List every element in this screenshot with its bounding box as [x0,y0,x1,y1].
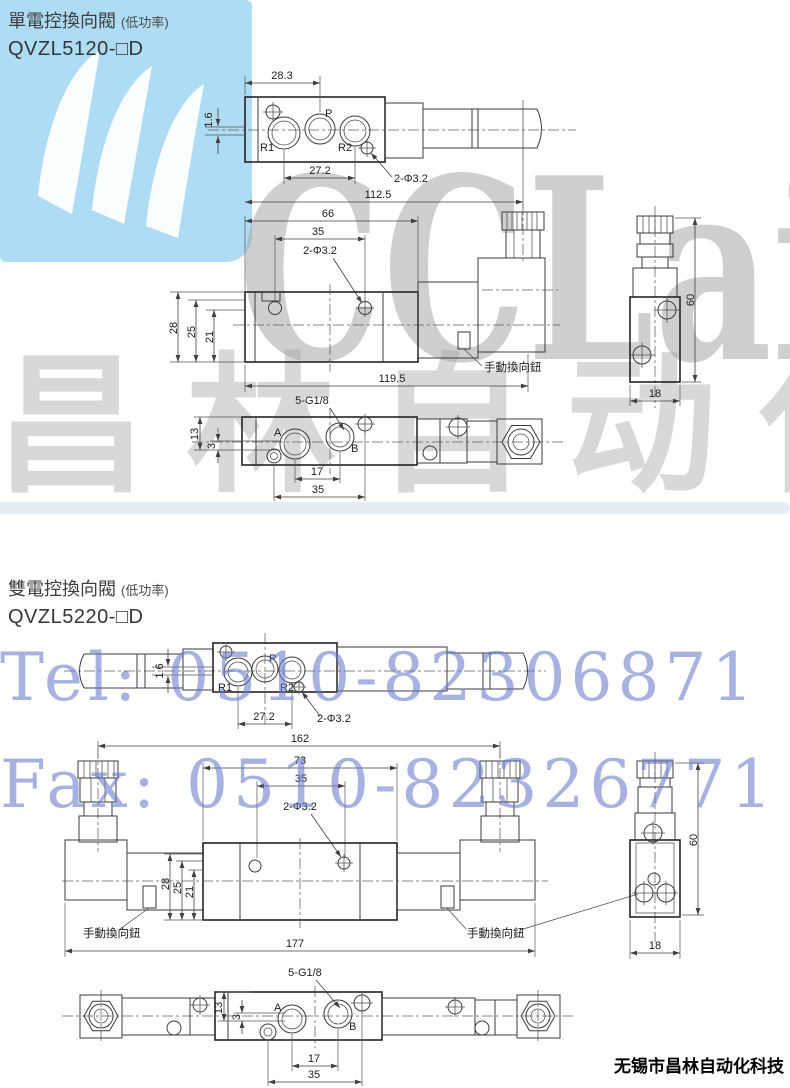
qvzl5120-drawing: R1 P R2 28.3 1.6 27.2 2-Φ3.2 112.5 66 35… [0,60,790,560]
dim-label: 1.6 [203,112,215,127]
section1-title-note: (低功率) [121,15,169,30]
section2-title-note: (低功率) [121,583,169,598]
callout-thread: 5-G1/8 [295,395,329,407]
port-label-r1: R1 [260,142,274,154]
dim-label: 18 [649,940,661,952]
s1-top-view: R1 P R2 28.3 1.6 27.2 2-Φ3.2 [203,70,576,185]
dim-label: 35 [312,484,324,496]
dim-label: 35 [312,226,324,238]
section1-header: 單電控換向閥 (低功率) QVZL5120-□D [8,7,169,61]
fax-watermark: Fax: 0510-82326771 [0,752,777,818]
catalog-page: { "watermarks": { "logo_text": "CCLair",… [0,0,790,1088]
port-label-a: A [274,1002,282,1014]
dim-label: 28 [168,322,180,334]
callout-thread: 5-G1/8 [288,967,322,979]
dim-label: 17 [308,1053,320,1065]
dim-label: 25 [172,882,184,894]
dim-label: 112.5 [365,189,392,201]
section2-title-text: 雙電控換向閥 [8,579,116,599]
section2-title: 雙電控換向閥 (低功率) [8,575,169,601]
dim-label: 13 [213,1002,225,1014]
port-label-p: P [325,108,332,120]
s2-bottom-view: A B 5-G1/8 13 3 17 35 [62,967,574,1086]
dim-label: 60 [688,834,700,846]
dim-label: 3 [231,1014,243,1020]
s1-bottom-view: A B 5-G1/8 13 3 17 35 [189,395,566,501]
s1-front-view: 112.5 66 35 2-Φ3.2 手動換向鈕 [168,160,560,392]
section2-model: QVZL5220-□D [8,606,169,629]
dim-label: 25 [186,326,198,338]
dim-label: 13 [189,428,201,440]
dim-label: 21 [204,331,216,343]
dim-label: 60 [685,294,697,306]
tel-watermark: Tel: 0510-82306871 [0,645,758,711]
callout-holes: 2-Φ3.2 [303,245,337,257]
s1-side-view: 60 18 [629,206,701,408]
dim-label: 21 [184,886,196,898]
section1-title: 單電控換向閥 (低功率) [8,7,169,33]
port-label-a: A [274,427,282,439]
dim-label: 18 [649,388,661,400]
dim-label: 3 [206,443,218,449]
callout-manual-override-right: 手動換向鈕 [467,926,525,940]
port-label-b: B [349,1021,356,1033]
section1-title-text: 單電控換向閥 [8,11,116,31]
dim-label: 17 [311,466,323,478]
section2-header: 雙電控換向閥 (低功率) QVZL5220-□D [8,575,169,629]
dim-label: 162 [291,733,309,745]
callout-manual-override: 手動換向鈕 [484,360,542,374]
section1-model: QVZL5120-□D [8,38,169,61]
port-label-r2: R2 [338,142,352,154]
dim-label: 35 [308,1069,320,1081]
dim-label: 28 [160,878,172,890]
dim-label: 27.2 [309,165,330,177]
callout-holes: 2-Φ3.2 [394,173,428,185]
dim-label: 28.3 [271,70,292,82]
footer-company: 无锡市昌林自动化科技 [614,1052,784,1077]
port-label-b: B [351,443,358,455]
dim-label: 119.5 [379,373,406,385]
callout-manual-override-left: 手動換向鈕 [83,926,141,940]
dim-label: 177 [286,938,304,950]
dim-label: 66 [322,208,334,220]
